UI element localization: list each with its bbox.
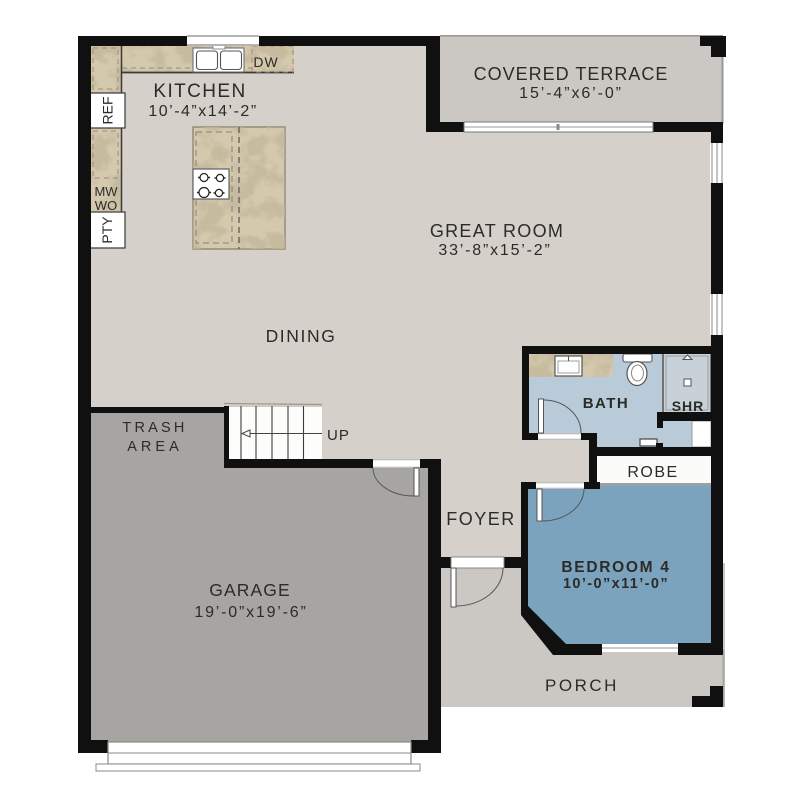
svg-text:FOYER: FOYER [446, 509, 516, 529]
svg-text:TRASH: TRASH [122, 420, 187, 436]
svg-text:PORCH: PORCH [545, 676, 619, 695]
svg-text:COVERED TERRACE: COVERED TERRACE [474, 64, 669, 84]
svg-text:SHR: SHR [672, 398, 705, 414]
svg-text:PTY: PTY [99, 216, 115, 244]
svg-text:ROBE: ROBE [627, 464, 678, 481]
svg-text:MW: MW [94, 184, 118, 199]
svg-text:BEDROOM 4: BEDROOM 4 [561, 559, 670, 576]
svg-text:KITCHEN: KITCHEN [153, 81, 246, 102]
svg-text:DW: DW [253, 54, 278, 70]
svg-text:AREA: AREA [127, 439, 183, 455]
svg-text:REF: REF [100, 97, 116, 125]
svg-text:10’-0”x11’-0”: 10’-0”x11’-0” [563, 576, 669, 592]
svg-text:BATH: BATH [583, 395, 630, 412]
svg-text:GARAGE: GARAGE [209, 580, 290, 600]
svg-text:DINING: DINING [266, 326, 337, 346]
svg-text:33’-8”x15’-2”: 33’-8”x15’-2” [438, 242, 551, 259]
svg-text:10’-4”x14’-2”: 10’-4”x14’-2” [148, 103, 257, 120]
svg-text:UP: UP [327, 427, 350, 444]
svg-text:19’-0”x19’-6”: 19’-0”x19’-6” [194, 604, 307, 621]
svg-text:GREAT ROOM: GREAT ROOM [430, 221, 564, 241]
svg-text:15’-4”x6’-0”: 15’-4”x6’-0” [519, 85, 623, 102]
svg-text:WO: WO [95, 198, 117, 213]
